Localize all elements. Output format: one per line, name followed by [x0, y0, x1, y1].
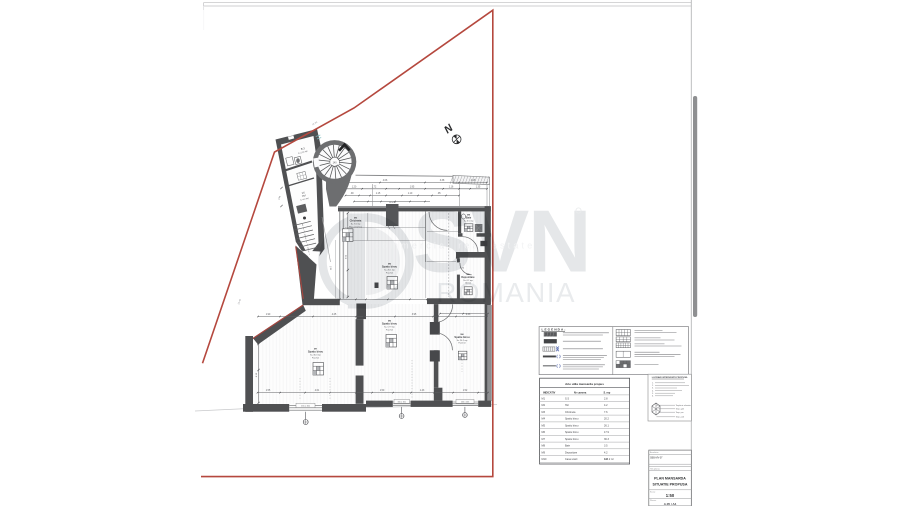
svg-text:Casa scarii: Casa scarii [565, 458, 578, 461]
svg-text:20.2: 20.2 [604, 418, 609, 421]
svg-text:Titlu plansa:: Titlu plansa: [650, 467, 661, 470]
svg-text:commercial real estate: commercial real estate [375, 241, 536, 251]
svg-text:3.95: 3.95 [412, 314, 417, 316]
svg-text:1.55: 1.55 [266, 390, 271, 392]
svg-text:M8: M8 [542, 445, 546, 448]
svg-text:1.52: 1.52 [463, 390, 468, 392]
svg-text:S= 36.3 mp: S= 36.3 mp [310, 355, 322, 357]
svg-text:Spatiu birou: Spatiu birou [565, 425, 579, 428]
svg-text:4.06: 4.06 [383, 180, 388, 182]
svg-text:4.2: 4.2 [604, 404, 608, 407]
svg-text:2.43: 2.43 [466, 314, 471, 316]
svg-text:Beneficiar:: Beneficiar: [650, 451, 659, 454]
svg-text:A.05 / A4: A.05 / A4 [664, 502, 677, 506]
svg-text:4.61: 4.61 [315, 390, 320, 392]
svg-text:2.8: 2.8 [604, 398, 608, 401]
svg-text:Depozitare: Depozitare [565, 451, 578, 454]
svg-text:Baie: Baie [565, 445, 571, 448]
svg-text:Spatiu birou: Spatiu birou [565, 438, 579, 441]
svg-text:LEGENDA:: LEGENDA: [542, 328, 567, 332]
svg-text:Spatiu birou: Spatiu birou [382, 322, 398, 326]
svg-text:Parchet: Parchet [458, 342, 466, 345]
svg-text:ROMANIA: ROMANIA [437, 277, 577, 308]
svg-text:SITUATIE PROPUSA: SITUATIE PROPUSA [653, 483, 688, 487]
svg-text:26.1: 26.1 [604, 425, 609, 428]
svg-text:M1: M1 [542, 398, 546, 401]
svg-text:M2: M2 [542, 404, 546, 407]
svg-text:1:50: 1:50 [666, 493, 675, 498]
svg-text:4.2: 4.2 [604, 451, 608, 454]
svg-text:4.25: 4.25 [332, 314, 337, 316]
svg-text:M3: M3 [542, 411, 546, 414]
svg-text:M6: M6 [542, 431, 546, 434]
svg-text:Scara:: Scara: [650, 490, 656, 493]
svg-text:1.20: 1.20 [352, 186, 357, 188]
svg-text:1.15: 1.15 [376, 193, 381, 195]
svg-text:Spatiu birou: Spatiu birou [454, 335, 470, 339]
svg-text:Parchet: Parchet [386, 328, 394, 331]
svg-text:Timplarie aluminiu: Timplarie aluminiu [676, 404, 691, 407]
svg-text:Timp. pvc: Timp. pvc [676, 412, 684, 414]
svg-text:1.95: 1.95 [410, 186, 415, 188]
svg-text:140: 140 [333, 162, 338, 165]
svg-text:Nr camera: Nr camera [574, 391, 587, 394]
svg-text:Chicineta: Chicineta [565, 411, 576, 414]
svg-text:S= 17.9 mp: S= 17.9 mp [384, 327, 396, 329]
svg-text:M10: M10 [542, 458, 547, 461]
svg-text:Hol: Hol [565, 404, 569, 407]
svg-text:PLAN MANSARDA: PLAN MANSARDA [654, 477, 686, 481]
svg-text:S= 20.2 mp: S= 20.2 mp [457, 340, 469, 342]
svg-text:1.35: 1.35 [476, 186, 481, 188]
svg-text:155 x 155: 155 x 155 [301, 406, 311, 408]
svg-text:M4: M4 [542, 418, 546, 421]
svg-text:Plansa:: Plansa: [650, 500, 657, 502]
svg-text:Spatiu birou: Spatiu birou [565, 431, 579, 434]
svg-text:155 x 155: 155 x 155 [461, 402, 469, 404]
svg-text:3.38: 3.38 [440, 180, 445, 182]
svg-text:3.5: 3.5 [604, 445, 608, 448]
svg-text:7.6: 7.6 [604, 411, 608, 414]
svg-text:1.16: 1.16 [449, 186, 454, 188]
svg-text:Spatiu birou: Spatiu birou [308, 350, 324, 354]
svg-text:SBB-MV-07: SBB-MV-07 [650, 456, 663, 459]
svg-text:Parchet: Parchet [312, 356, 320, 359]
svg-text:36.3: 36.3 [604, 438, 609, 441]
svg-text:M5: M5 [542, 425, 546, 428]
svg-text:S. mp: S. mp [604, 391, 611, 394]
svg-text:M9: M9 [542, 451, 546, 454]
svg-text:S.S: S.S [565, 398, 569, 401]
svg-text:Timp. glaf: Timp. glaf [676, 409, 685, 411]
svg-text:1.43: 1.43 [420, 390, 425, 392]
svg-text:INDICATIV: INDICATIV [543, 391, 556, 394]
svg-text:132.2 m²: 132.2 m² [604, 458, 614, 461]
svg-text:LUCRARI INTERVENTII PROPUSE:: LUCRARI INTERVENTII PROPUSE: [652, 376, 688, 379]
svg-text:60 x 60: 60 x 60 [389, 202, 396, 204]
svg-text:2.18: 2.18 [471, 180, 476, 182]
svg-text:Arie utila mansarda propus: Arie utila mansarda propus [565, 382, 604, 386]
svg-text:Spatiu birou: Spatiu birou [565, 418, 579, 421]
svg-text:17.9: 17.9 [604, 431, 609, 434]
svg-text:1.50: 1.50 [380, 390, 385, 392]
svg-text:M7: M7 [542, 438, 546, 441]
svg-text:1.90: 1.90 [266, 314, 271, 316]
svg-text:Timp. prof: Timp. prof [676, 416, 685, 419]
svg-text:155 x 155: 155 x 155 [397, 402, 405, 404]
